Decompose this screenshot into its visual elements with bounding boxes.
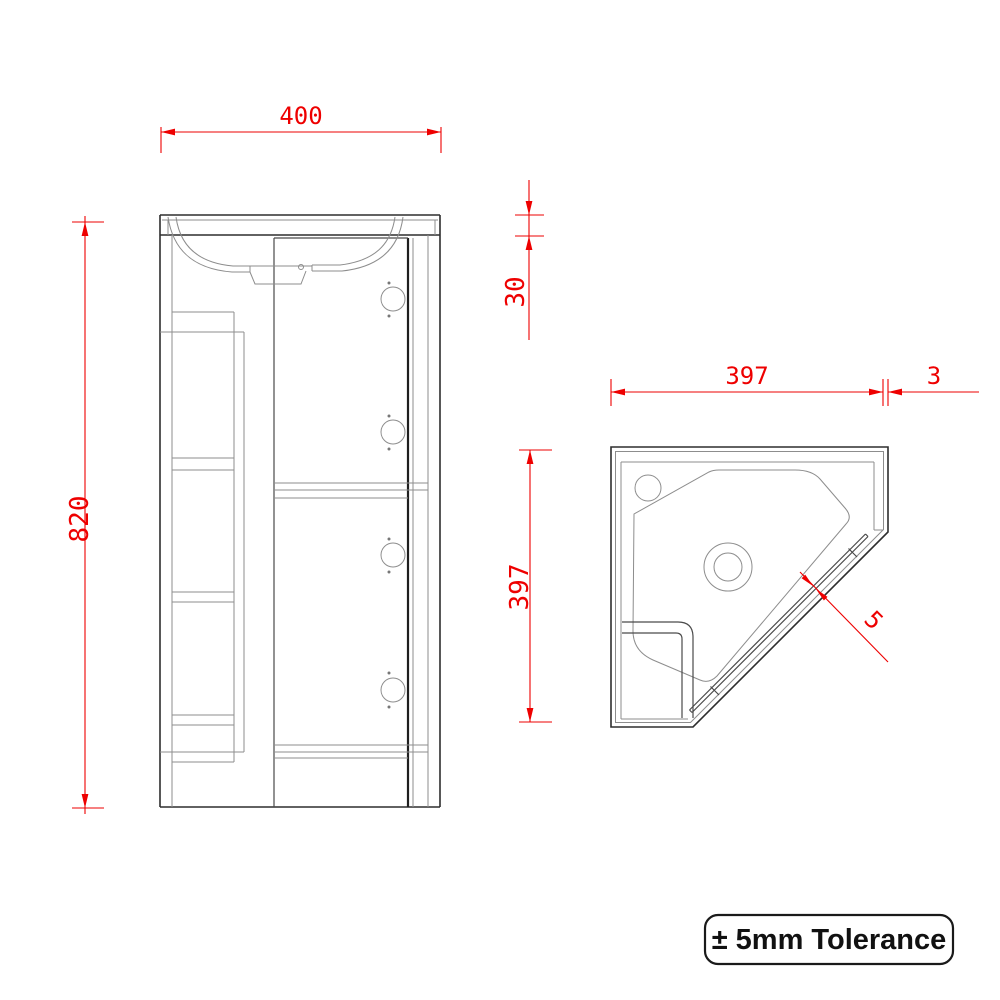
knob-screw-dot [388,571,391,574]
dimension-arrowheads [888,389,902,396]
front-inner-lines [160,220,438,807]
dimension-door-gap: 5 [800,572,889,662]
plan-tap-hole [635,475,661,501]
technical-drawing-page: 400 820 30 397 [0,0,1000,1000]
dimension-front-height: 820 [65,216,104,814]
front-door-knobs [381,282,405,709]
dimension-worktop-thickness: 30 [501,180,544,340]
front-door-left-and-top-edge [274,238,408,807]
knob-screw-dot [388,282,391,285]
knob-circle [381,287,405,311]
tolerance-note: ± 5mm Tolerance [705,915,953,964]
dimension-plan-width: 397 [611,362,883,406]
knob-screw-dot [388,538,391,541]
front-basin [168,217,403,284]
knob-circle [381,678,405,702]
basin-bowl-curves [168,217,403,284]
knob-screw-dot [388,415,391,418]
dimension-value-plan-depth: 397 [505,564,535,611]
knob-circle [381,420,405,444]
tolerance-note-text: ± 5mm Tolerance [712,924,947,956]
dimension-value-front-width: 400 [279,102,322,130]
dimension-value-front-height: 820 [65,496,95,543]
plan-shelf-panel [622,622,693,718]
dimension-value-door-gap: 5 [859,605,889,635]
knob-screw-dot [388,448,391,451]
knob-circle [381,543,405,567]
dimension-value-worktop-overhang: 3 [927,362,941,390]
drain-outer-circle [704,543,752,591]
plan-panel-faces [621,462,884,719]
plan-outer-outline [611,447,888,727]
dimension-plan-depth: 397 [505,450,552,722]
plan-view [611,447,888,727]
vanity-unit-technical-drawing: 400 820 30 397 [0,0,1000,1000]
dimension-value-worktop-thickness: 30 [501,276,531,307]
plan-basin-outline [633,470,849,681]
knob-screw-dot [388,672,391,675]
dimension-worktop-overhang: 3 [888,362,979,406]
front-outer-frame [160,215,440,807]
drain-inner-circle [714,553,742,581]
knob-screw-dot [388,706,391,709]
dimension-value-plan-width: 397 [725,362,768,390]
knob-screw-dot [388,315,391,318]
plan-drain [704,543,752,591]
plan-inner-outline [616,452,884,723]
front-view [160,215,440,807]
dimension-front-width: 400 [161,102,441,153]
plan-door-front-lines [690,534,869,713]
basin-overflow-hole [299,265,304,270]
dimension-line [161,127,441,153]
